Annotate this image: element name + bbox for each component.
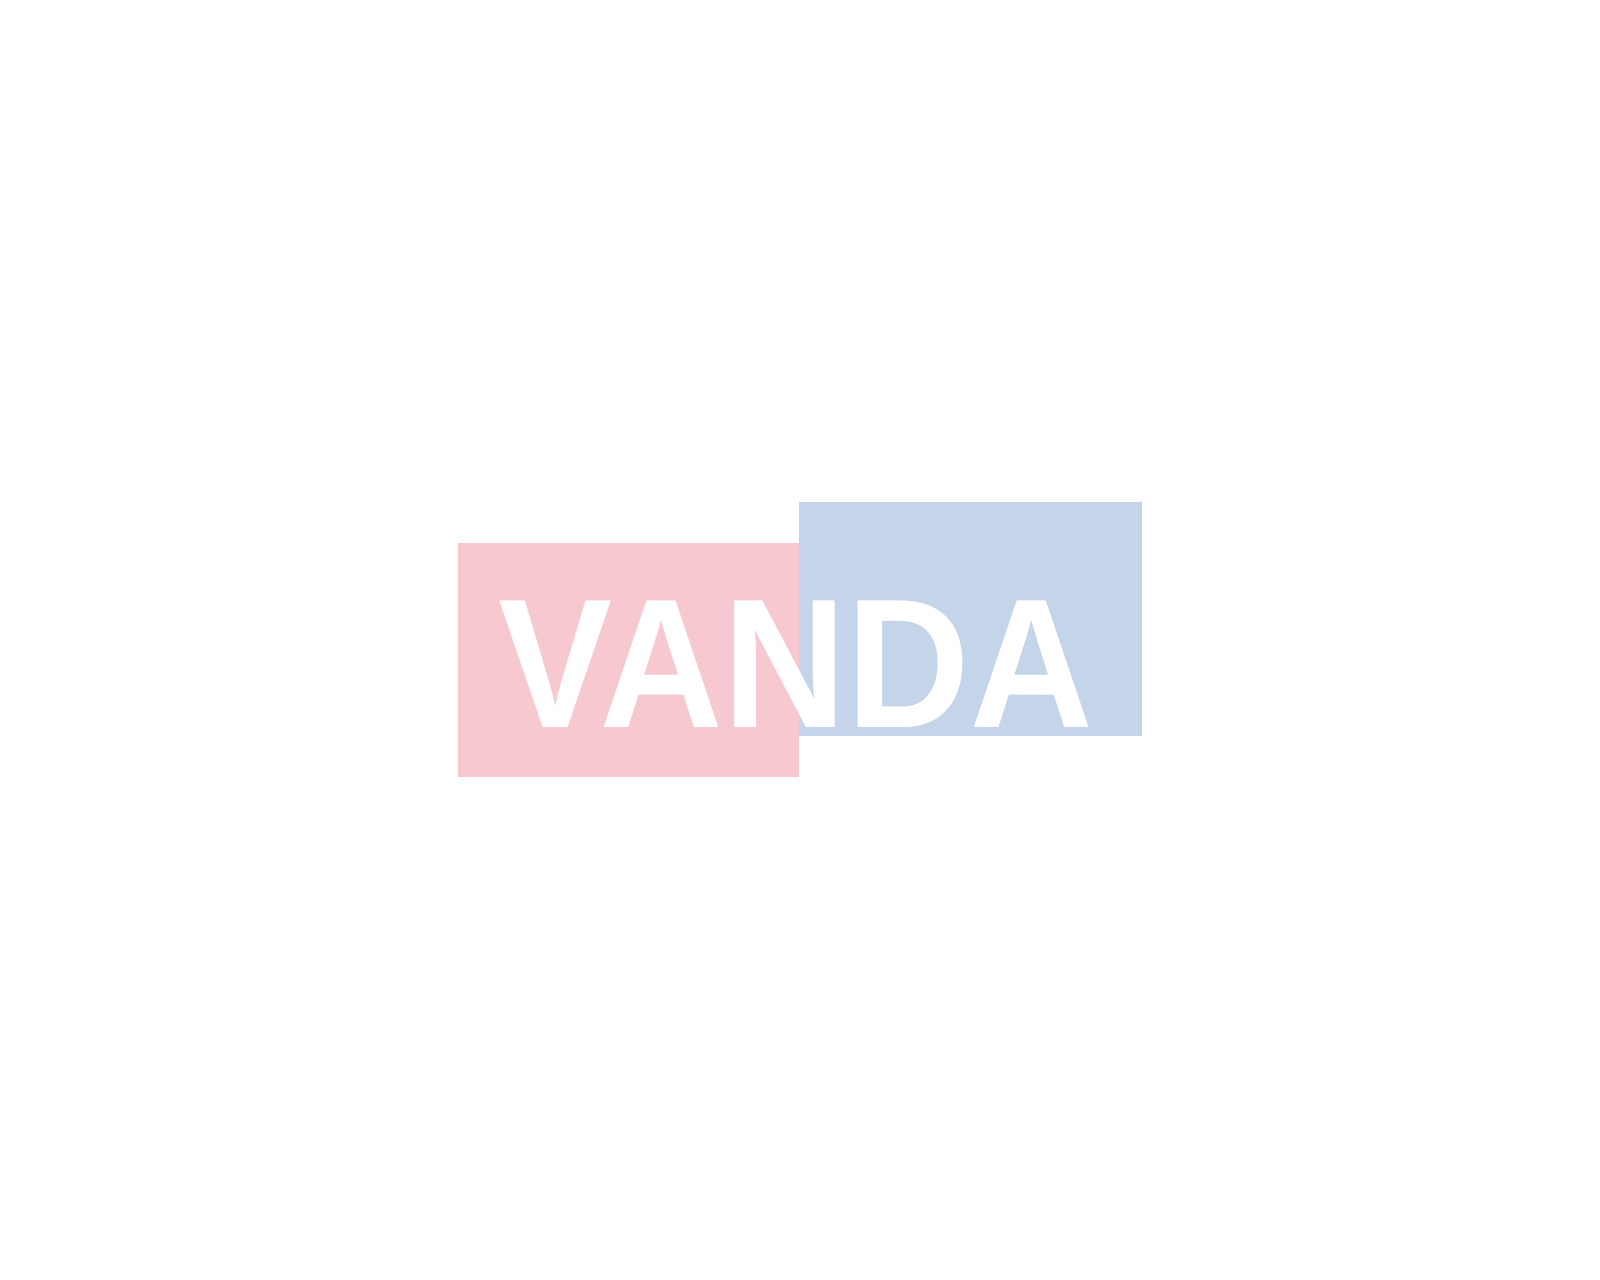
- svg-text:VANDA: VANDA: [498, 560, 1093, 766]
